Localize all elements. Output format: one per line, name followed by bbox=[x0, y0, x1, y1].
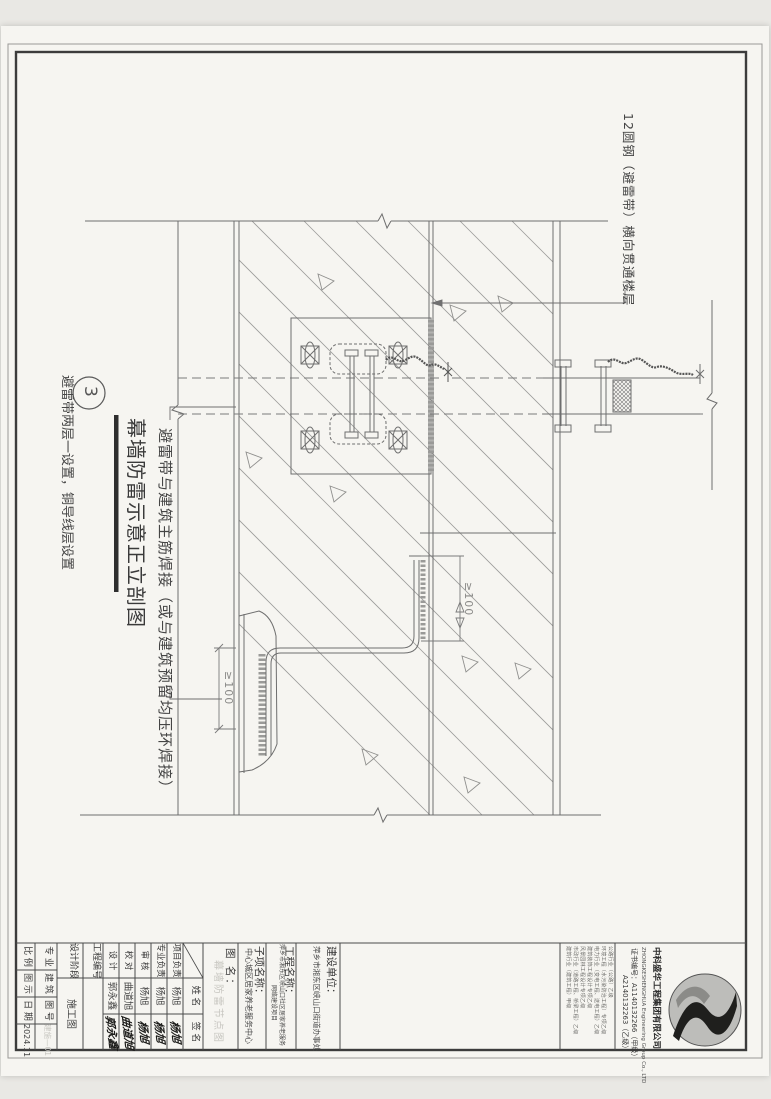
name-discipline-lead: 杨旭 bbox=[155, 978, 165, 1014]
project-label: 工程名称： bbox=[284, 946, 295, 999]
owner-label: 建设单位： bbox=[326, 946, 337, 999]
signature-discipline-lead: 杨旭 bbox=[154, 1014, 165, 1050]
company-cert-line1: 证书编号：A1140132266（甲级） bbox=[630, 948, 637, 1060]
note-weld-to-rebar: 避雷带与建筑主筋焊接（或与建筑预留均压环焊接） bbox=[157, 428, 172, 796]
dim-label-lower: ≥100 bbox=[223, 671, 234, 705]
owner-value: 萍乡市湘东区峡山口街道办事处 bbox=[313, 946, 321, 1051]
drawing-name-label: 图 名： bbox=[225, 948, 236, 991]
date-value: 2024.11 bbox=[22, 1024, 30, 1050]
signature-project-lead: 杨旭 bbox=[170, 1014, 181, 1050]
expansion-joint-detail bbox=[543, 300, 717, 490]
name-checker: 曲道旭 bbox=[123, 978, 133, 1014]
drawing-name-stamp: 幕墙防雷节点图 bbox=[212, 960, 222, 1044]
qualification-line: 市政行业（道路工程、桥梁工程）乙级 bbox=[572, 946, 577, 1034]
stage-value: 施工图 bbox=[65, 978, 75, 1050]
qualification-line: 建筑行业（建筑工程）甲级 bbox=[565, 946, 570, 1008]
project-value-line1: 萍乡市湘东区峡山口社区居家养老服务 bbox=[278, 944, 284, 1046]
figure-title: 幕墙防雷示意正立剖图 bbox=[126, 418, 146, 628]
note-through-floor: 12圆钢（避雷带）横向贯通楼层 bbox=[622, 113, 635, 306]
anchor-bolt-icon bbox=[301, 427, 319, 453]
subproject-label: 子项名称： bbox=[254, 946, 265, 999]
qualification-line: 建筑装饰工程设计专项乙级 bbox=[586, 946, 591, 1008]
table-header-sign: 签 名 bbox=[190, 1014, 199, 1050]
qualification-line: 电力行业（变电工程、送电工程）乙级 bbox=[593, 946, 598, 1034]
role-checker: 校 对 bbox=[124, 943, 133, 978]
anchor-bolt-icon bbox=[389, 427, 407, 453]
subproject-value: 中心城区居家养老服务中心 bbox=[244, 948, 252, 1044]
qualification-line: 公路行业（公路）乙级 bbox=[607, 946, 612, 998]
stage-label: 设计阶段 bbox=[68, 943, 77, 978]
company-name: 中科盛华工程集团有限公司 bbox=[652, 947, 661, 1049]
scanned-drawing-page: { "sheet": { "figure": { "number": "3", … bbox=[0, 0, 771, 1099]
name-designer: 郭永鑫 bbox=[107, 978, 117, 1014]
role-reviewer: 审 核 bbox=[140, 943, 149, 978]
company-logo-icon bbox=[669, 974, 741, 1046]
role-project-lead: 项目负责 bbox=[172, 943, 181, 978]
company-cert-line2: A2140132263（乙级） bbox=[621, 975, 628, 1052]
figure-subtitle: 避雷带两层一设置，铜导线层设置 bbox=[60, 375, 73, 570]
title-underline bbox=[114, 415, 119, 592]
dimension-lines bbox=[214, 556, 464, 733]
company-name-en: ZHONGKESHENGHUA Engineering Group Co., L… bbox=[640, 947, 646, 1083]
drawing-no-value: 建施—01 bbox=[44, 1024, 52, 1050]
project-no-label: 工程编号 bbox=[91, 943, 100, 978]
qualification-line: 风景园林工程设计专项乙级 bbox=[579, 946, 584, 1008]
mesh-sleeve bbox=[613, 380, 631, 412]
scale-value: 图 示 bbox=[22, 970, 31, 997]
date-label: 日 期 bbox=[22, 997, 31, 1024]
signature-checker: 曲道旭 bbox=[122, 1014, 133, 1050]
qualification-line: 环境工程（水污染防治工程）专项乙级 bbox=[600, 946, 605, 1034]
signature-reviewer: 杨旭 bbox=[138, 1014, 149, 1050]
role-discipline-lead: 专业负责 bbox=[156, 943, 165, 978]
table-header-name: 姓 名 bbox=[190, 978, 199, 1014]
discipline-value: 建 筑 bbox=[43, 970, 52, 997]
drawing-linework bbox=[0, 0, 771, 1099]
embed-plate-detail bbox=[291, 318, 431, 474]
figure-number: 3 bbox=[81, 386, 98, 397]
braided-conductor bbox=[608, 358, 693, 375]
name-reviewer: 杨旭 bbox=[139, 978, 149, 1014]
anchor-bolt-icon bbox=[389, 342, 407, 368]
role-designer: 设 计 bbox=[108, 943, 117, 978]
project-value-line2: 网络建设项目 bbox=[270, 985, 276, 1021]
anchor-bolt-icon bbox=[301, 342, 319, 368]
outer-border bbox=[8, 44, 762, 1058]
dim-label-upper: ≥100 bbox=[463, 582, 474, 616]
drawing-no-label: 图 号 bbox=[43, 997, 52, 1024]
leader-lines bbox=[170, 290, 625, 699]
scale-label: 比 例 bbox=[22, 943, 31, 970]
name-project-lead: 杨旭 bbox=[171, 978, 181, 1014]
signature-designer: 郭永鑫 bbox=[106, 1014, 117, 1050]
discipline-label: 专 业 bbox=[43, 943, 52, 970]
